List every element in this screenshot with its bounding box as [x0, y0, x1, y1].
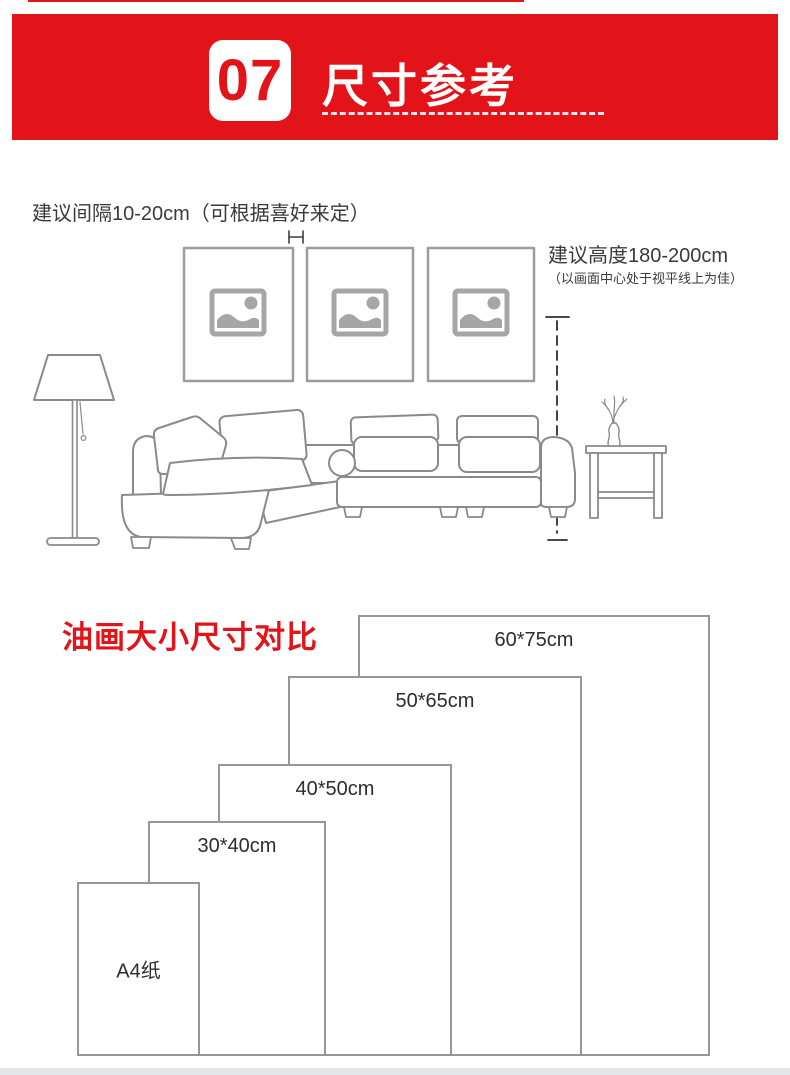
size-label: A4纸	[79, 955, 198, 984]
table-leg	[654, 453, 662, 518]
size-label: 40*50cm	[220, 778, 450, 801]
table-leg	[590, 453, 598, 518]
sofa-chaise-base	[122, 490, 269, 538]
size-label: 30*40cm	[150, 835, 324, 858]
size-reference-infographic: 07 尺寸参考 建议间隔10-20cm（可根据喜好来定） 建议高度180-200…	[0, 0, 790, 1075]
vase-twigs	[602, 396, 627, 423]
size-chart-title: 油画大小尺寸对比	[62, 612, 318, 657]
table-top	[586, 446, 666, 453]
sofa-right-arm	[541, 437, 575, 507]
spacing-marker-icon	[289, 231, 303, 243]
sofa-lumbar-cushion	[459, 437, 540, 472]
image-placeholder-icon	[455, 291, 507, 334]
size-rect-a4: A4纸	[77, 882, 200, 1056]
table-crossbar	[598, 492, 654, 498]
image-placeholder-icon	[334, 291, 386, 334]
sofa-main-base	[337, 477, 541, 507]
side-table	[586, 396, 666, 518]
sofa	[122, 409, 575, 549]
image-placeholder-icon	[212, 291, 264, 334]
sofa-bolster-pillow	[329, 450, 355, 476]
floor-lamp	[34, 355, 114, 545]
sofa-lumbar-cushion	[354, 437, 438, 471]
size-label: 60*75cm	[360, 629, 708, 652]
vase	[608, 423, 620, 448]
size-label: 50*65cm	[290, 690, 580, 713]
bottom-divider-strip	[0, 1068, 790, 1075]
